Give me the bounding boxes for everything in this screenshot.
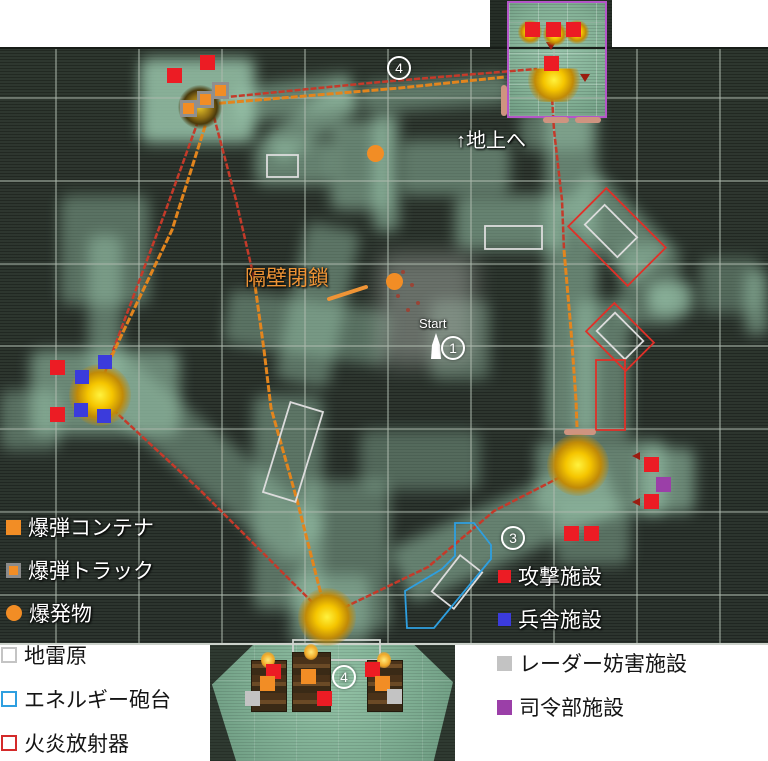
start-label: Start — [419, 316, 446, 331]
legend-item-bomb-container: 爆弾コンテナ — [6, 513, 154, 541]
marker-blue — [97, 409, 111, 423]
bulkhead-closed-mark — [329, 287, 366, 299]
legend-white-left: 地雷原エネルギー砲台火炎放射器 — [1, 641, 171, 761]
marker-red — [546, 22, 561, 37]
marker-orange — [260, 676, 275, 691]
gold-base-blob — [547, 434, 609, 496]
marker-red — [50, 360, 65, 375]
legend-item-flamethrower: 火炎放射器 — [1, 729, 171, 757]
marker-gray — [387, 689, 402, 704]
blue-outline-square-icon — [1, 691, 17, 707]
waypoint-number: 1 — [441, 336, 465, 360]
legend-item-minefield: 地雷原 — [1, 641, 171, 669]
legend-item-attack-facility: 攻撃施設 — [498, 562, 602, 590]
flamethrower-zones — [568, 188, 666, 430]
truck-flame — [304, 644, 318, 660]
marker-red — [365, 662, 380, 677]
marker-gray — [245, 691, 260, 706]
legend-label: 司令部施設 — [519, 692, 624, 722]
start-player-icon — [431, 333, 441, 359]
waypoint-number: 4 — [387, 56, 411, 80]
orange-square-gray-border-icon — [6, 563, 21, 578]
gray-square-icon — [497, 656, 512, 671]
legend-label: 火炎放射器 — [24, 728, 129, 758]
legend-white-right: レーダー妨害施設司令部施設 — [497, 649, 687, 737]
marker-blue — [75, 370, 89, 384]
legend-label: 爆発物 — [29, 598, 92, 628]
legend-label: 兵舎施設 — [518, 604, 602, 634]
marker-purple — [656, 477, 671, 492]
marker-red — [525, 22, 540, 37]
marker-truck — [180, 100, 197, 117]
marker-blue — [74, 403, 88, 417]
gold-base-blob — [298, 588, 355, 645]
marker-truck — [212, 82, 229, 99]
legend-item-radar-jamming-facility: レーダー妨害施設 — [497, 649, 687, 677]
marker-red — [566, 22, 581, 37]
legend-label: 地雷原 — [24, 640, 87, 670]
legend-label: 爆弾トラック — [28, 555, 154, 585]
blue-square-icon — [498, 613, 511, 626]
red-square-icon — [498, 570, 511, 583]
marker-orange — [301, 669, 316, 684]
marker-blue — [98, 355, 112, 369]
purple-square-icon — [497, 700, 512, 715]
orange-circle-icon — [6, 605, 22, 621]
marker-red — [167, 68, 182, 83]
marker-red — [644, 457, 659, 472]
legend-item-hq-facility: 司令部施設 — [497, 693, 687, 721]
marker-red — [200, 55, 215, 70]
legend-map-right: 攻撃施設兵舎施設 — [498, 562, 602, 648]
legend-item-energy-turret: エネルギー砲台 — [1, 685, 171, 713]
small-arrow-marks — [546, 42, 640, 506]
bulkhead-closed-label: 隔壁閉鎖 — [245, 262, 329, 292]
legend-item-barracks-facility: 兵舎施設 — [498, 605, 602, 633]
legend-label: 爆弾コンテナ — [28, 512, 154, 542]
marker-red — [50, 407, 65, 422]
legend-item-bomb-truck: 爆弾トラック — [6, 556, 154, 584]
legend-map-left: 爆弾コンテナ爆弾トラック爆発物 — [6, 513, 154, 642]
waypoint-number: 3 — [501, 526, 525, 550]
game-map-screen: ↑地上へ Start 隔壁閉鎖 爆弾コンテナ爆弾トラック爆発物 攻撃施設兵舎施設… — [0, 0, 768, 761]
marker-red — [564, 526, 579, 541]
marker-red — [584, 526, 599, 541]
marker-red — [644, 494, 659, 509]
orange-square-icon — [6, 520, 21, 535]
white-outline-square-icon — [1, 647, 17, 663]
legend-label: 攻撃施設 — [518, 561, 602, 591]
waypoint-number: 4 — [332, 665, 356, 689]
marker-red — [544, 56, 559, 71]
legend-item-explosive: 爆発物 — [6, 599, 154, 627]
marker-red — [317, 691, 332, 706]
legend-label: エネルギー砲台 — [24, 684, 171, 714]
energy-turret-zone — [405, 523, 491, 628]
red-outline-square-icon — [1, 735, 17, 751]
legend-label: レーダー妨害施設 — [519, 648, 687, 678]
marker-explosive — [367, 145, 384, 162]
to-surface-label: ↑地上へ — [456, 124, 526, 153]
marker-explosive — [386, 273, 403, 290]
